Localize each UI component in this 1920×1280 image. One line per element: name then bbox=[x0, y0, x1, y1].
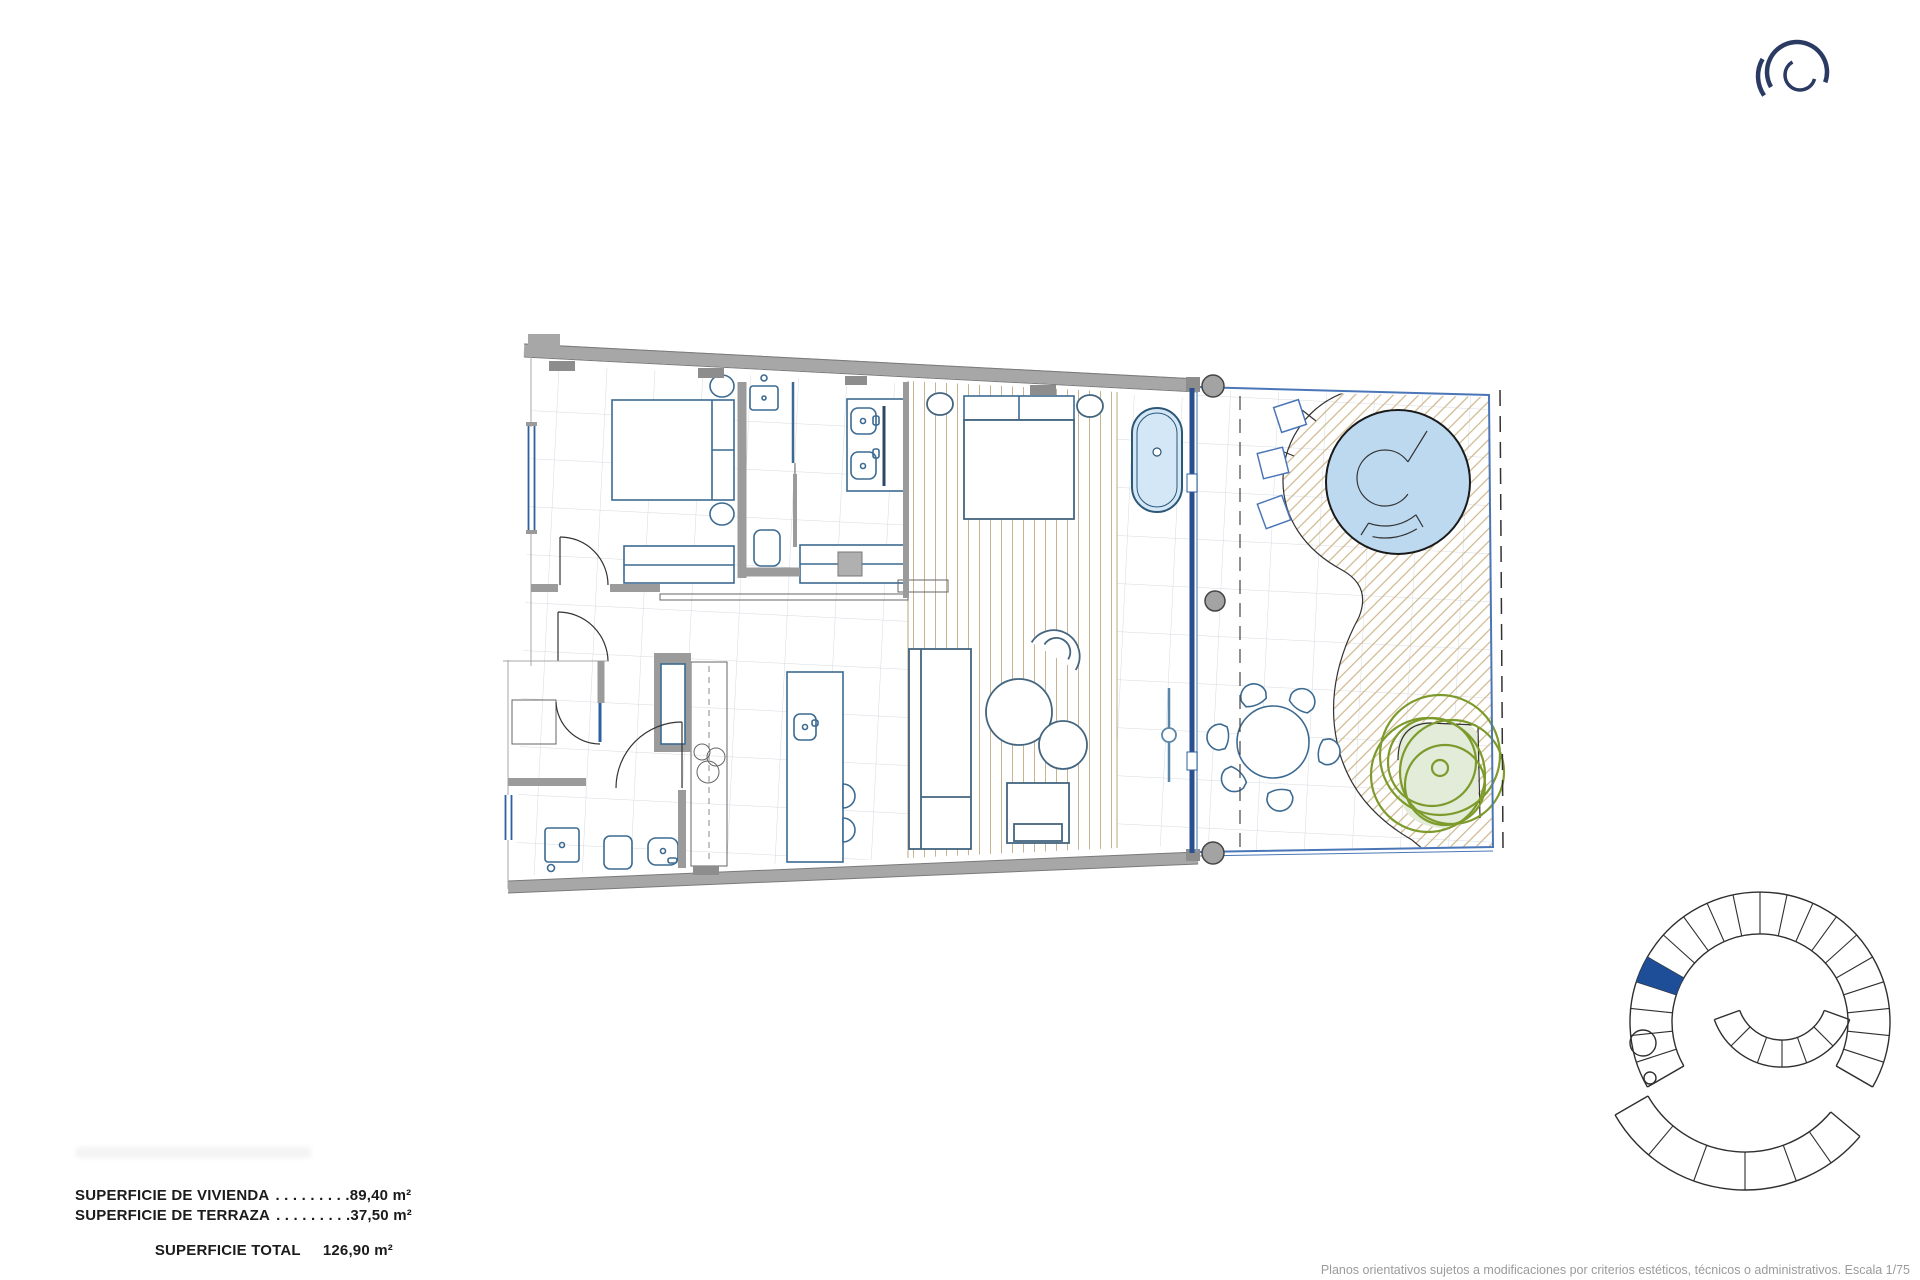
logo-inner-arc-icon bbox=[1785, 62, 1814, 90]
surface-row-total: SUPERFICIE TOTAL 126,90 m² bbox=[75, 1241, 393, 1261]
surface-total-label: SUPERFICIE TOTAL bbox=[155, 1241, 301, 1261]
nightstand bbox=[710, 503, 734, 525]
surface-label: SUPERFICIE DE TERRAZA bbox=[75, 1206, 270, 1226]
side-table bbox=[1039, 721, 1087, 769]
surface-value: 89,40 m² bbox=[350, 1186, 412, 1206]
brand-logo bbox=[1758, 42, 1827, 95]
surface-table: SUPERFICIE DE VIVIENDA . . . . . . . . .… bbox=[75, 1186, 393, 1261]
leader-dots: . . . . . . . . . bbox=[275, 1186, 349, 1206]
nightstand bbox=[710, 375, 734, 397]
master-bedroom bbox=[927, 393, 1182, 519]
window bbox=[506, 795, 512, 840]
inner-row-divisions bbox=[1731, 1027, 1833, 1067]
leader-dots: . . . . . . . . . bbox=[276, 1206, 350, 1226]
surface-total-value: 126,90 m² bbox=[323, 1241, 393, 1261]
sofa bbox=[909, 649, 971, 849]
floor-plan-sheet: { "sheet": {"background": "#ffffff"}, "s… bbox=[0, 0, 1920, 1280]
nightstand bbox=[927, 393, 953, 415]
kitchen-island bbox=[787, 672, 843, 862]
nightstand bbox=[1077, 395, 1103, 417]
surface-label: SUPERFICIE DE VIVIENDA bbox=[75, 1186, 269, 1206]
washbasin bbox=[648, 838, 678, 865]
site-key-plan bbox=[1615, 892, 1890, 1190]
surface-row-vivienda: SUPERFICIE DE VIVIENDA . . . . . . . . .… bbox=[75, 1186, 393, 1206]
faint-print-artifact bbox=[76, 1147, 311, 1158]
plunge-pool bbox=[1326, 410, 1470, 554]
pool-water bbox=[1326, 410, 1470, 554]
selected-unit-highlight bbox=[1636, 957, 1683, 995]
logo-outer-ring-icon bbox=[1767, 42, 1827, 87]
toilet bbox=[754, 530, 780, 566]
disclaimer-text: Planos orientativos sujetos a modificaci… bbox=[1321, 1263, 1910, 1277]
bed bbox=[964, 420, 1074, 519]
surface-value: 37,50 m² bbox=[350, 1206, 412, 1226]
logo-swoosh-icon bbox=[1758, 59, 1764, 96]
plan-drawing bbox=[0, 0, 1920, 1280]
toilet bbox=[604, 836, 632, 869]
floor-plan bbox=[500, 334, 1510, 900]
surface-row-terraza: SUPERFICIE DE TERRAZA . . . . . . . . . … bbox=[75, 1206, 393, 1226]
